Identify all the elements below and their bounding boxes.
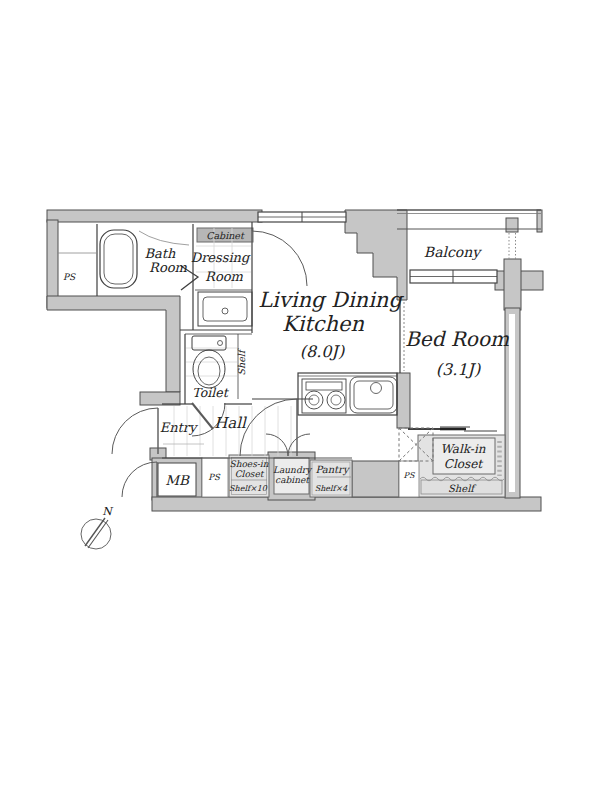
- washing-machine: [198, 292, 252, 326]
- bathtub: [100, 230, 137, 288]
- party-wall-core: [509, 314, 515, 492]
- toilet-label: Toilet: [192, 385, 229, 400]
- kitchen-counter: [298, 373, 397, 415]
- bath-room-label: Bath: [145, 246, 177, 261]
- cabinet-label: Cabinet: [206, 230, 245, 241]
- walkin-closet-label: Walk-in: [441, 442, 486, 456]
- pantry-label: Pantry: [315, 464, 349, 476]
- laundry-cabinet-label-2: cabinet: [275, 475, 310, 485]
- entry-door: [112, 408, 158, 454]
- dressing-room-label-2: Room: [205, 269, 243, 284]
- dressing-ldk-door: [252, 231, 307, 286]
- dressing-room-label: Dressing: [191, 250, 251, 265]
- walkin-shelf-label: Shelf: [448, 483, 477, 494]
- ldk-label: Living Dining: [258, 288, 404, 312]
- floor-plan-page: PS Bath Room Cabinet Dressing Room Livin…: [0, 0, 600, 800]
- ps-mid-label: PS: [208, 472, 221, 482]
- ps-left-label: PS: [63, 272, 76, 282]
- mb-label: MB: [165, 472, 190, 488]
- kitchen-sink: [350, 377, 397, 413]
- balcony-label: Balcony: [424, 244, 482, 261]
- pantry-shelf-label: Shelf×4: [315, 484, 349, 493]
- bedroom-size-label: (3.1J): [436, 360, 481, 379]
- bedroom-label: Bed Room: [405, 327, 509, 351]
- ldk-size-label: (8.0J): [300, 342, 345, 361]
- hall-ldk-door: [240, 399, 297, 456]
- shoes-closet-label: Shoes-in: [229, 459, 268, 469]
- compass-icon: [81, 518, 111, 549]
- compass-north-label: N: [102, 505, 114, 518]
- hall-label: Hall: [214, 414, 247, 432]
- ps-right-label: PS: [404, 471, 416, 480]
- bath-partition-curve: [139, 231, 189, 245]
- laundry-cabinet-label: Laundry: [273, 465, 313, 475]
- shelf-vertical-label: Shelf: [236, 348, 247, 375]
- ldk-label-2: Kitchen: [282, 312, 365, 336]
- kitchen-stove: [302, 379, 346, 413]
- entry-label: Entry: [160, 420, 198, 435]
- walkin-closet-label-2: Closet: [444, 457, 484, 471]
- shoes-closet-label-2: Closet: [235, 469, 265, 479]
- floor-plan-drawing: PS Bath Room Cabinet Dressing Room Livin…: [0, 0, 600, 800]
- shoes-shelf-label: Shelf×10: [229, 484, 268, 493]
- bath-room-label-2: Room: [149, 260, 187, 275]
